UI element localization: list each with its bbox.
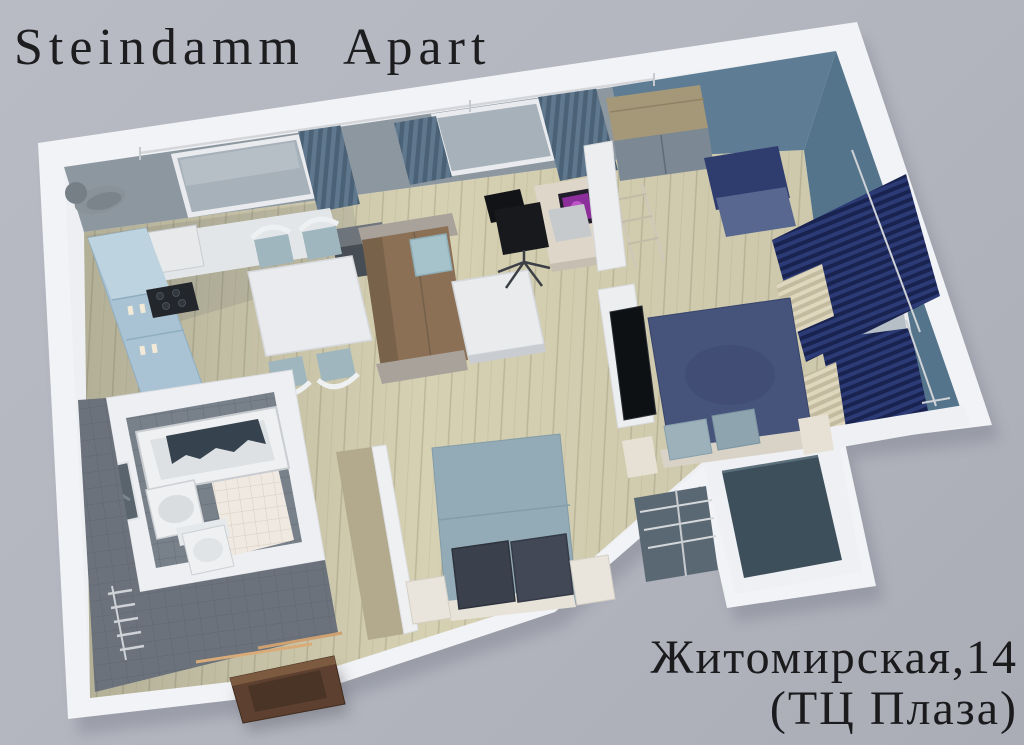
laptop-keyboard (548, 204, 592, 242)
render-canvas: Steindamm Apart Житомирская,14 (ТЦ Плаза… (0, 0, 1024, 745)
page-title: Steindamm Apart (14, 22, 491, 74)
dining-table (248, 256, 372, 356)
bed-pillow (664, 419, 712, 460)
dark-pillow (511, 534, 573, 602)
dark-pillow (452, 541, 515, 609)
office-chair-seat (494, 202, 549, 255)
navy-bed-duvet-shade (685, 345, 775, 405)
living-window-glass (434, 101, 554, 174)
coffee-table (452, 270, 544, 356)
nightstand (406, 576, 451, 624)
nightstand (798, 414, 834, 455)
nightstand (622, 436, 658, 478)
address-block: Житомирская,14 (ТЦ Плаза) (651, 633, 1018, 735)
address-line-1: Житомирская,14 (651, 633, 1018, 684)
address-line-2: (ТЦ Плаза) (651, 684, 1018, 735)
sofa-pillow (410, 234, 452, 276)
bed-pillow (712, 409, 760, 450)
nightstand (570, 555, 615, 605)
